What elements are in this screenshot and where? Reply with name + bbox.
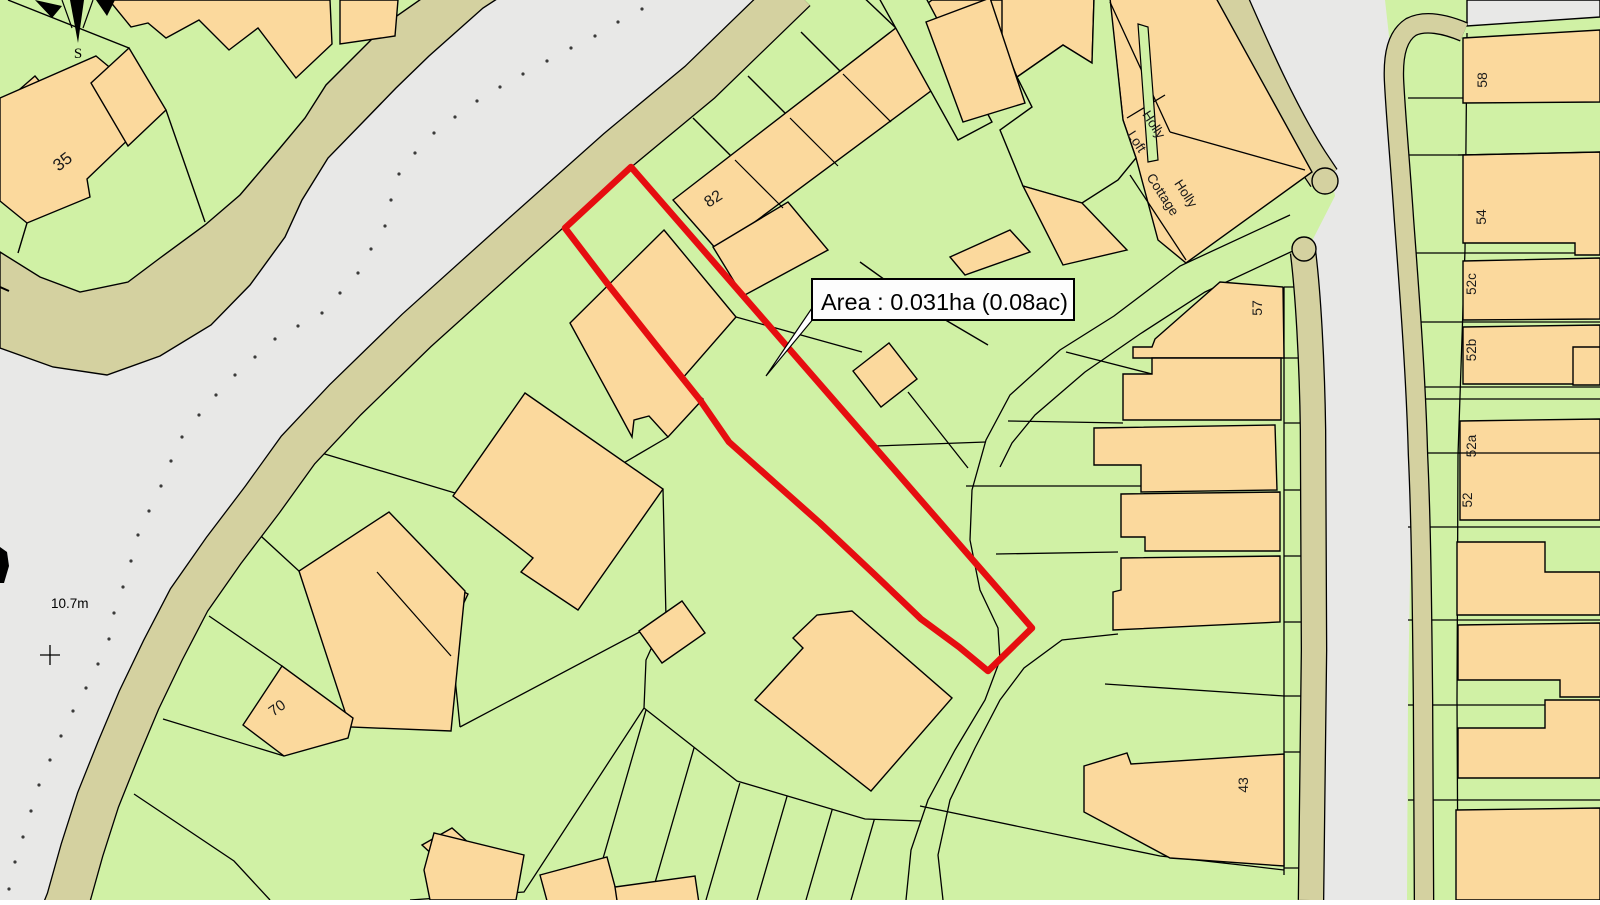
svg-text:S: S: [74, 46, 82, 62]
svg-text:Area : 0.031ha (0.08ac): Area : 0.031ha (0.08ac): [821, 289, 1068, 315]
svg-text:58: 58: [1474, 72, 1490, 88]
svg-text:57: 57: [1249, 300, 1265, 316]
svg-text:52c: 52c: [1464, 273, 1479, 295]
svg-text:10.7m: 10.7m: [51, 596, 89, 611]
svg-text:43: 43: [1235, 777, 1251, 793]
svg-text:54: 54: [1473, 209, 1489, 225]
svg-text:52a: 52a: [1464, 434, 1479, 457]
svg-text:52b: 52b: [1464, 339, 1479, 362]
svg-text:52: 52: [1460, 492, 1475, 507]
